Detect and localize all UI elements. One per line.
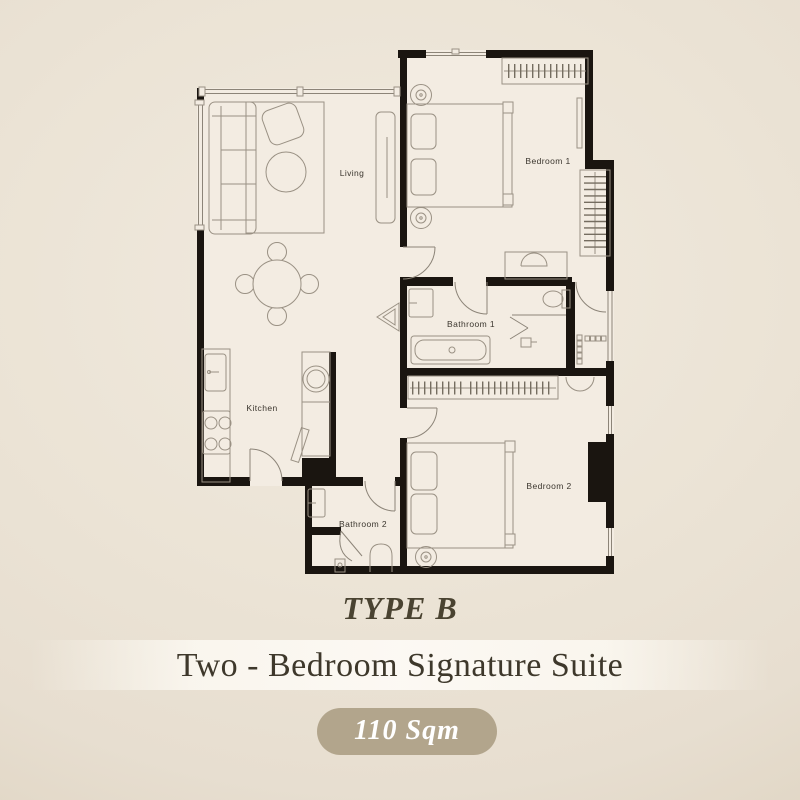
poster-canvas: Living Bedroom 1 Bathroom 1 Kitchen Bath…	[0, 0, 800, 800]
area-badge-label: 110 Sqm	[317, 708, 497, 755]
plan-name: Two - Bedroom Signature Suite	[0, 647, 800, 685]
room-label-bedroom2: Bedroom 2	[526, 481, 571, 491]
plan-type-title: TYPE B	[0, 590, 800, 627]
room-label-bedroom1: Bedroom 1	[525, 156, 570, 166]
room-label-bathroom2: Bathroom 2	[339, 519, 387, 529]
room-label-living: Living	[340, 168, 365, 178]
room-label-bathroom1: Bathroom 1	[447, 319, 495, 329]
room-label-kitchen: Kitchen	[246, 403, 277, 413]
area-badge: 110 Sqm	[317, 708, 497, 755]
